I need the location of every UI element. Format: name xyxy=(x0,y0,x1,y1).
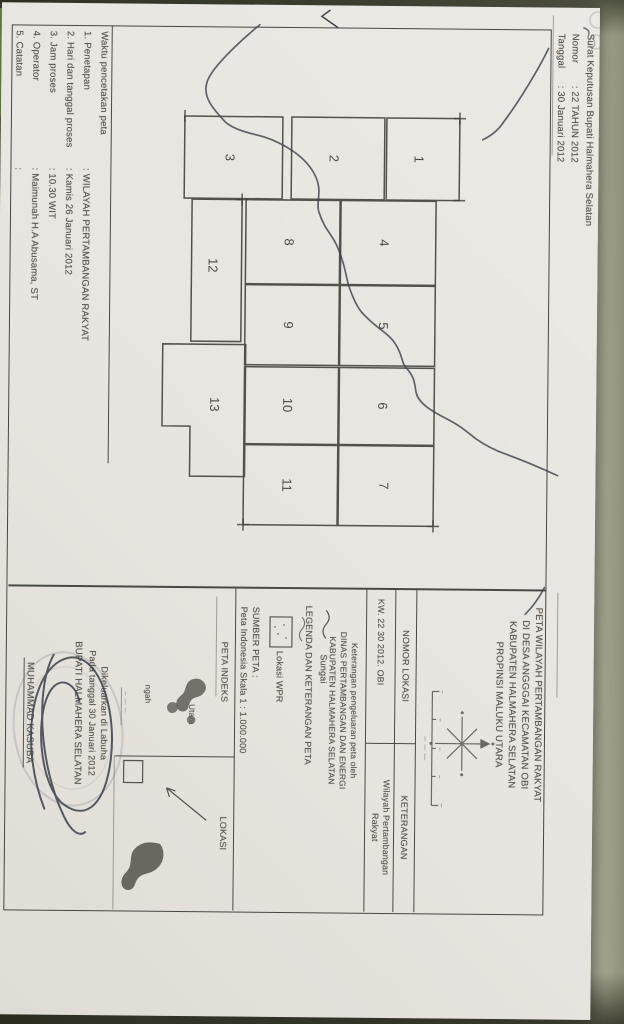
margin-pen-marks xyxy=(322,10,595,48)
parcel-label: 13 xyxy=(207,397,222,412)
parcel-label: 3 xyxy=(223,154,238,161)
index-map xyxy=(121,678,206,726)
signature-scribble xyxy=(30,655,113,835)
parcel-grid xyxy=(161,116,460,527)
wpr-box-icon xyxy=(270,617,292,647)
parcel-label: 9 xyxy=(281,321,296,328)
legend-symbols xyxy=(270,610,329,648)
location-marker-box xyxy=(124,760,143,782)
parcel-label: 6 xyxy=(375,402,390,409)
parcel-label: 10 xyxy=(280,398,295,413)
map-artwork: 1 2 3 4 5 6 7 8 9 10 11 12 13 xyxy=(0,2,600,1020)
parcel-label: 4 xyxy=(377,239,392,246)
river-symbol-icon-2 xyxy=(299,617,304,641)
checkmark-icon xyxy=(322,10,338,27)
scale-bar xyxy=(424,690,442,807)
location-map xyxy=(121,760,206,890)
parcel-label: 2 xyxy=(327,155,342,162)
paper-sheet: Surat Keputusan Bupati Halmahera Selatan… xyxy=(0,2,600,1020)
parcel-label: 1 xyxy=(412,156,427,163)
location-pointer-arrow-icon xyxy=(166,788,206,820)
river-symbol-icon xyxy=(323,610,329,638)
scanned-document: Surat Keputusan Bupati Halmahera Selatan… xyxy=(0,0,624,1024)
parcel-label: 7 xyxy=(376,482,391,489)
parcel-label: 12 xyxy=(205,258,220,273)
drafting-ticks xyxy=(181,110,466,533)
north-arrow-icon xyxy=(430,712,494,776)
parcel-label: 8 xyxy=(282,238,297,245)
parcel-label: 11 xyxy=(279,478,294,492)
